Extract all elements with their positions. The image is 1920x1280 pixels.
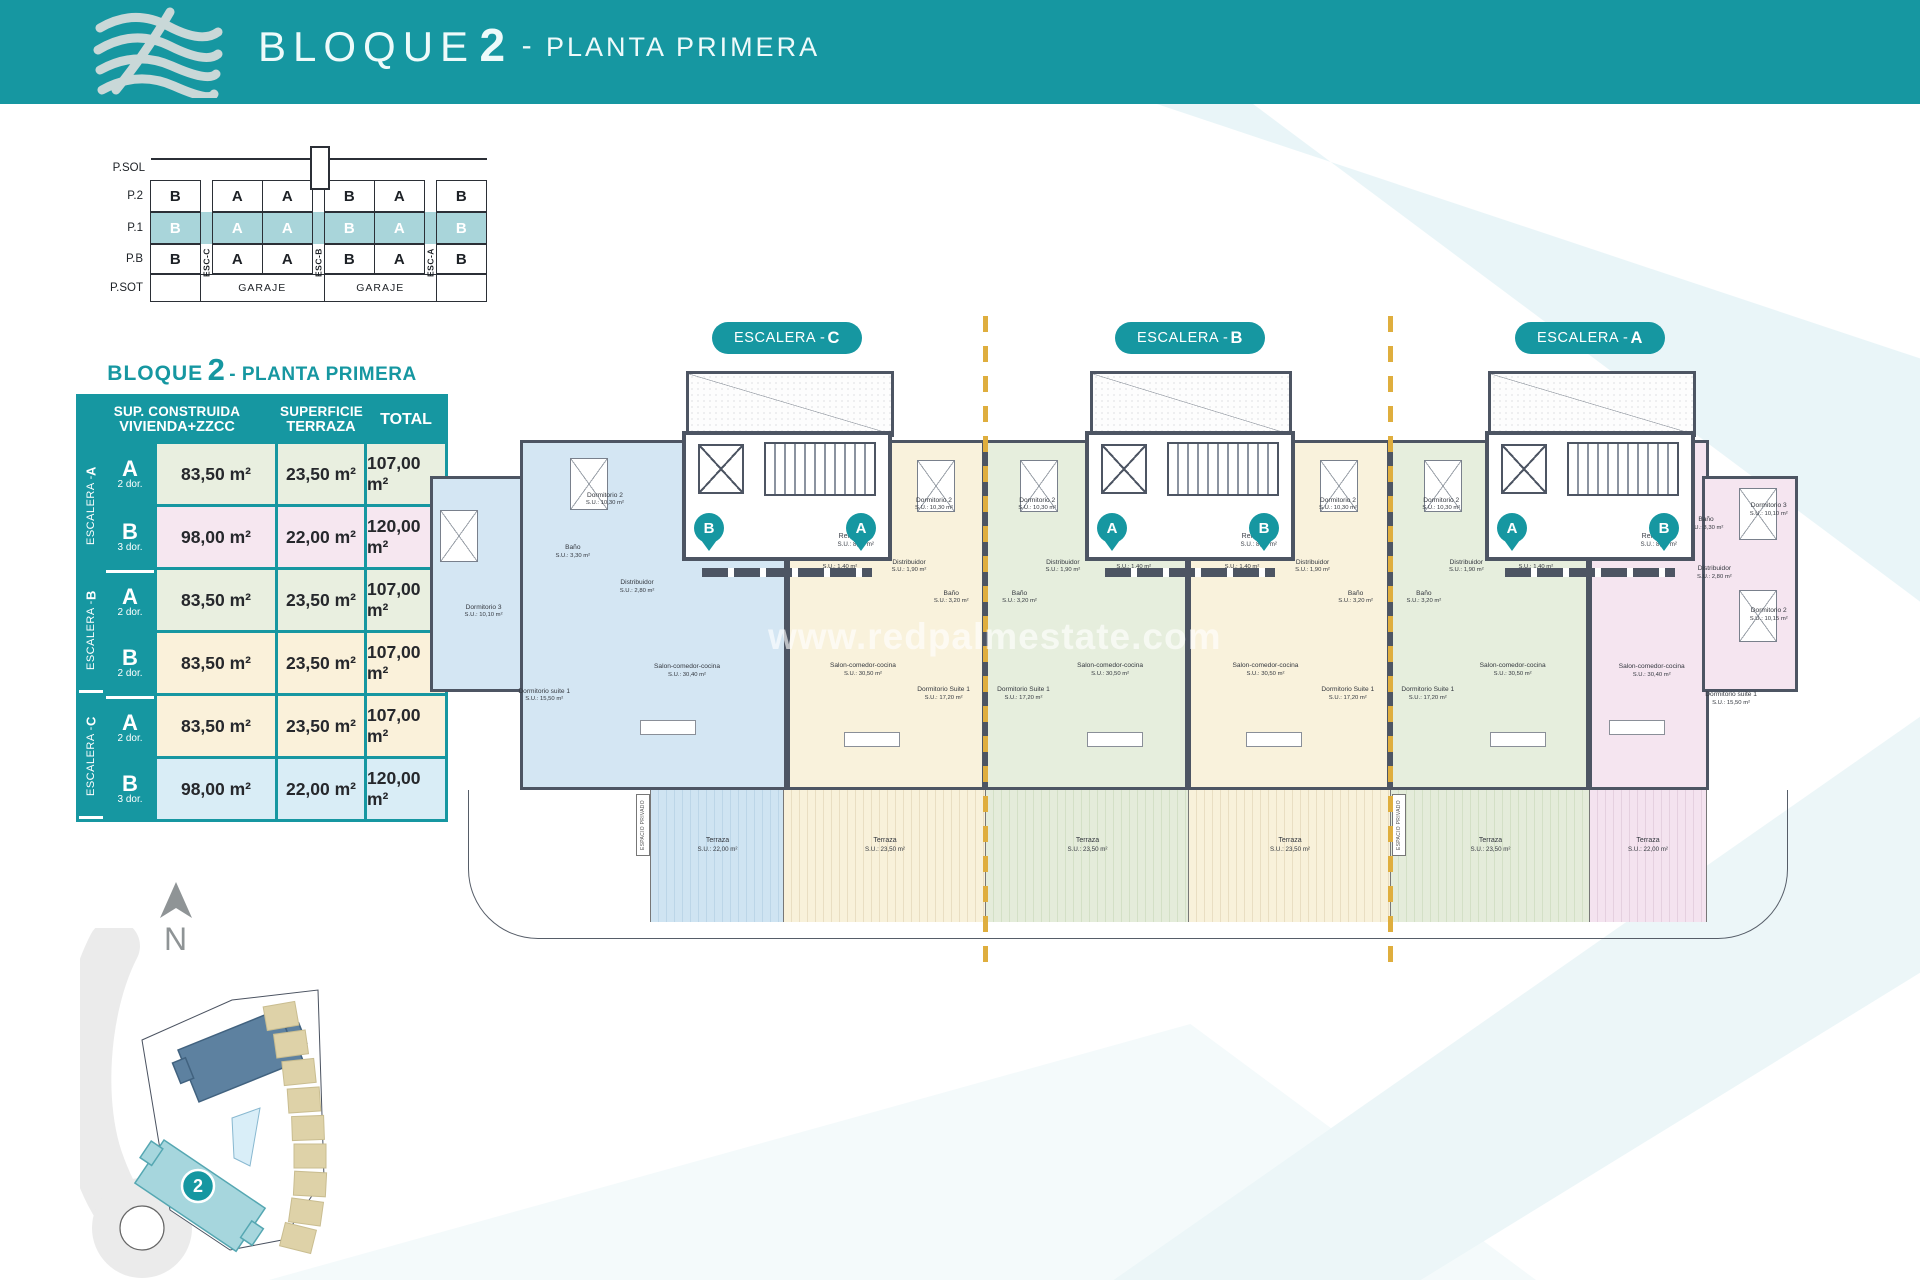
- construida-value: 83,50 m²: [157, 570, 275, 630]
- construida-value: 98,00 m²: [157, 507, 275, 567]
- construida-value: 83,50 m²: [157, 696, 275, 756]
- stairs-icon: [1567, 442, 1679, 496]
- title-dash: -: [522, 29, 532, 62]
- stair-core-b: Rellano P1S.U.: 8,00 m² A B: [1085, 431, 1295, 561]
- unit-pin-a: A: [1497, 513, 1527, 543]
- column-header-construida: SUP. CONSTRUIDAVIVIENDA+ZZCC: [79, 397, 275, 441]
- unit-badge: B2 dor.: [106, 633, 154, 693]
- unit-cell-highlight: B: [150, 212, 202, 244]
- unit-cell: A: [212, 244, 264, 274]
- table-icon: [844, 732, 900, 747]
- construida-value: 83,50 m²: [157, 633, 275, 693]
- watermark: www.redpalmestate.com: [768, 616, 1222, 658]
- unit-badge: A2 dor.: [106, 696, 154, 756]
- roof-escalera-a: [1488, 371, 1696, 437]
- terraza-value: 23,50 m²: [278, 570, 364, 630]
- unit-pin-a: A: [846, 513, 876, 543]
- escalera-a-pill: ESCALERA - A: [1515, 322, 1665, 354]
- terraza-value: 22,00 m²: [278, 759, 364, 819]
- unit-badge: A2 dor.: [106, 570, 154, 630]
- title-number: 2: [480, 19, 508, 71]
- unit-cell: B: [324, 180, 376, 212]
- title-bloque: BLOQUE: [258, 23, 475, 70]
- stairs-icon: [764, 442, 876, 496]
- terraza-value: 23,50 m²: [278, 633, 364, 693]
- espacio-privado-label: ESPACIO PRIVADO: [1392, 794, 1406, 856]
- unit-cell: B: [150, 180, 202, 212]
- unit-pin-b: B: [694, 513, 724, 543]
- stairs-icon: [1167, 442, 1279, 496]
- escalera-c-group: ESCALERA - C A2 dor. 83,50 m² 23,50 m² 1…: [76, 696, 448, 822]
- block-2-marker-number: 2: [193, 1176, 203, 1196]
- page-title: BLOQUE 2 - PLANTA PRIMERA: [258, 18, 820, 72]
- elevator-icon: [1501, 444, 1547, 494]
- floor-label: P.SOT: [95, 282, 151, 294]
- area-table: BLOQUE 2 - PLANTA PRIMERA SUP. CONSTRUID…: [76, 352, 448, 822]
- table-header-row: SUP. CONSTRUIDAVIVIENDA+ZZCC SUPERFICIET…: [76, 394, 448, 441]
- unit-cell-highlight: B: [436, 212, 488, 244]
- roof-escalera-b: [1090, 371, 1292, 437]
- floor-label: P.2: [95, 190, 151, 202]
- unit-badge: A2 dor.: [106, 444, 154, 504]
- stair-core-a: Rellano P1S.U.: 8,00 m² A B: [1485, 431, 1695, 561]
- unit-annex: [430, 476, 526, 692]
- unit-pin-b: B: [1649, 513, 1679, 543]
- site-plan: 2: [80, 928, 350, 1280]
- bed-icon: [440, 510, 478, 562]
- unit-cell: A: [262, 244, 314, 274]
- escalera-b-group: ESCALERA - B A2 dor. 83,50 m² 23,50 m² 1…: [76, 570, 448, 696]
- table-icon: [1246, 732, 1302, 747]
- building-section-diagram: P.SOL P.2 B A A B A B P.1 B A A B A B P.…: [95, 146, 487, 308]
- terrace-c-a: TerrazaS.U.: 23,50 m²: [783, 790, 987, 922]
- unit-cell: B: [436, 244, 488, 274]
- construida-value: 83,50 m²: [157, 444, 275, 504]
- column-header-terraza: SUPERFICIETERRAZA: [278, 397, 364, 441]
- escalera-a-group: ESCALERA - A A2 dor. 83,50 m² 23,50 m² 1…: [76, 441, 448, 570]
- roof-escalera-c: [686, 371, 894, 437]
- north-letter: N: [146, 921, 206, 958]
- terrace-b-b: TerrazaS.U.: 23,50 m²: [1188, 790, 1392, 922]
- unit-cell-highlight: A: [212, 212, 264, 244]
- terrace-a-a: TerrazaS.U.: 23,50 m²: [1390, 790, 1591, 922]
- unit-badge: B3 dor.: [106, 507, 154, 567]
- terrace-a-b: TerrazaS.U.: 22,00 m²: [1589, 790, 1707, 922]
- title-planta: PLANTA PRIMERA: [546, 32, 820, 62]
- table-icon: [640, 720, 696, 735]
- garaje-label: GARAJE: [200, 274, 326, 302]
- kitchen-wall: [1105, 568, 1275, 577]
- brand-waves-icon: [92, 6, 224, 98]
- elevator-icon: [698, 444, 744, 494]
- terrace-c-b: TerrazaS.U.: 22,00 m²: [650, 790, 785, 922]
- separator-dashed-line: [1388, 316, 1393, 976]
- unit-cell: B: [324, 244, 376, 274]
- floor-label: P.B: [95, 253, 151, 265]
- floor-label: P.SOL: [95, 162, 145, 174]
- unit-pin-a: A: [1097, 513, 1127, 543]
- escalera-group-label: ESCALERA - B: [79, 570, 103, 693]
- esc-label: ESC-A: [423, 240, 438, 286]
- north-arrow: N: [146, 880, 206, 958]
- stair-tower: [310, 146, 330, 190]
- garaje-label: GARAJE: [324, 274, 438, 302]
- brochure-page: BLOQUE 2 - PLANTA PRIMERA P.SOL P.2 B A …: [0, 0, 1920, 1280]
- terraza-value: 22,00 m²: [278, 507, 364, 567]
- basement-cell: [436, 274, 488, 302]
- terrace-b-a: TerrazaS.U.: 23,50 m²: [985, 790, 1190, 922]
- unit-cell: B: [150, 244, 202, 274]
- unit-cell: A: [374, 244, 426, 274]
- table-title-rest: - PLANTA PRIMERA: [229, 364, 416, 385]
- construida-value: 98,00 m²: [157, 759, 275, 819]
- unit-cell: B: [436, 180, 488, 212]
- unit-cell-highlight: A: [262, 212, 314, 244]
- page-header: BLOQUE 2 - PLANTA PRIMERA: [0, 0, 1920, 104]
- escalera-c-pill: ESCALERA - C: [712, 322, 862, 354]
- terraza-value: 23,50 m²: [278, 696, 364, 756]
- floor-label: P.1: [95, 222, 151, 234]
- terraza-value: 23,50 m²: [278, 444, 364, 504]
- table-title-number: 2: [208, 352, 225, 387]
- table-title-bloque: BLOQUE: [107, 362, 203, 385]
- elevator-icon: [1101, 444, 1147, 494]
- unit-pin-b: B: [1249, 513, 1279, 543]
- kitchen-wall: [1505, 568, 1675, 577]
- escalera-group-label: ESCALERA - A: [79, 444, 103, 567]
- stair-core-c: Rellano P1S.U.: 8,00 m² B A: [682, 431, 892, 561]
- unit-badge: B3 dor.: [106, 759, 154, 819]
- espacio-privado-label: ESPACIO PRIVADO: [636, 794, 650, 856]
- kitchen-wall: [702, 568, 872, 577]
- unit-cell: A: [212, 180, 264, 212]
- escalera-b-pill: ESCALERA - B: [1115, 322, 1265, 354]
- basement-cell: [150, 274, 202, 302]
- roundabout-island: [120, 1206, 164, 1250]
- table-icon: [1490, 732, 1546, 747]
- escalera-group-label: ESCALERA - C: [79, 696, 103, 819]
- esc-label: ESC-C: [199, 240, 214, 286]
- unit-cell-highlight: B: [324, 212, 376, 244]
- table-title: BLOQUE 2 - PLANTA PRIMERA: [76, 352, 448, 388]
- esc-label: ESC-B: [311, 240, 326, 286]
- table-icon: [1087, 732, 1143, 747]
- unit-cell-highlight: A: [374, 212, 426, 244]
- table-icon: [1609, 720, 1665, 735]
- unit-cell: A: [262, 180, 314, 212]
- unit-cell: A: [374, 180, 426, 212]
- north-arrow-icon: [154, 880, 198, 920]
